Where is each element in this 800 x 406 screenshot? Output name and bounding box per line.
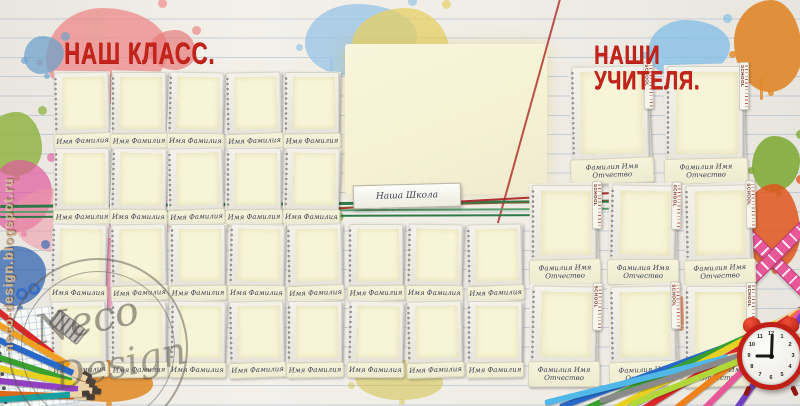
teacher-name-line2: Отчество: [623, 272, 663, 280]
student-name-text: Имя Фамилия: [228, 213, 281, 222]
spiral-binding-icon: [405, 305, 412, 359]
teacher-name-line2: Отчество: [544, 374, 584, 382]
ruler-tab-text: SCHOOL: [671, 284, 676, 306]
spiral-binding-icon: [406, 227, 413, 281]
student-photo-frame: Имя Фамилия: [168, 147, 224, 228]
student-name-text: Имя Фамилия: [285, 213, 338, 221]
student-name-text: Имя Фамилия: [231, 365, 284, 375]
photo-placeholder: [179, 229, 221, 281]
photo-placeholder: [540, 292, 591, 358]
teacher-photo-frame: SCHOOLФамилия ИмяОтчество: [532, 185, 596, 261]
paint-splatter-dot: [296, 44, 303, 51]
paint-splatter-dot: [38, 106, 47, 115]
photo-card: [285, 72, 339, 134]
photo-card: [285, 147, 340, 210]
student-photo-frame: Имя Фамилия: [54, 71, 110, 152]
teachers-section-title: НАШИ УЧИТЕЛЯ.: [594, 42, 771, 94]
spiral-binding-icon: [166, 152, 173, 206]
photo-card: [287, 223, 342, 286]
photo-placeholder: [176, 153, 219, 206]
student-name-text: Имя Фамилия: [230, 289, 283, 297]
clock-number: 2: [789, 342, 792, 348]
student-name-text: Имя Фамилия: [469, 366, 522, 375]
clock-number: 1: [780, 334, 783, 340]
student-photo-frame: Имя Фамилия: [407, 300, 463, 381]
teacher-name-line2: Отчество: [686, 171, 726, 180]
photo-placeholder: [476, 306, 518, 358]
photo-card: [227, 148, 281, 210]
spiral-binding-icon: [167, 75, 174, 129]
spiral-binding-icon: [110, 76, 116, 130]
student-photo-frame: Имя Фамилия: [226, 71, 282, 152]
spiral-binding-icon: [224, 76, 231, 130]
student-photo-frame: Имя Фамилия: [229, 300, 285, 381]
photo-placeholder: [120, 77, 162, 129]
spiral-binding-icon: [465, 228, 472, 282]
student-name-text: Имя Фамилия: [289, 366, 342, 375]
photo-card: [226, 71, 281, 134]
teacher-name-label: Фамилия ИмяОтчество: [528, 361, 600, 387]
ruler-tab-icon: SCHOOL: [671, 182, 682, 230]
spiral-binding-icon: [52, 76, 59, 130]
spiral-binding-icon: [228, 227, 235, 281]
photo-placeholder: [295, 229, 338, 282]
photo-placeholder: [237, 306, 280, 359]
teacher-photo-frame: SCHOOLФамилия ИмяОтчество: [685, 184, 750, 261]
student-name-text: Имя Фамилия: [56, 136, 109, 146]
spiral-binding-icon: [285, 228, 292, 282]
student-name-text: Имя Фамилия: [286, 137, 339, 146]
spiral-binding-icon: [53, 152, 59, 206]
teacher-name-label: Фамилия ИмяОтчество: [529, 258, 602, 286]
student-name-text: Имя Фамилия: [408, 289, 461, 297]
student-name-label: Имя Фамилия: [228, 361, 287, 379]
photo-placeholder: [238, 229, 281, 282]
school-name-banner: Наша Школа: [353, 183, 462, 210]
paint-splatter-dot: [796, 175, 800, 184]
paint-splatter-dot: [408, 0, 417, 6]
ruler-tab-text: SCHOOL: [747, 285, 752, 307]
ruler-tab-text: SCHOOL: [672, 185, 677, 207]
student-photo-frame: Имя Фамилия: [287, 223, 343, 304]
clock-number: 6: [769, 375, 772, 381]
student-name-text: Имя Фамилия: [170, 212, 223, 222]
teacher-name-line2: Отчество: [592, 170, 632, 180]
teacher-name-line1: Фамилия Имя: [617, 264, 670, 272]
student-photo-frame: Имя Фамилия: [407, 223, 463, 304]
student-photo-frame: Имя Фамилия: [285, 72, 339, 152]
clock-number: 9: [747, 353, 750, 359]
spiral-binding-icon: [110, 151, 117, 205]
ruler-tab-text: SCHOOL: [746, 183, 751, 205]
spiral-binding-icon: [529, 289, 536, 358]
student-name-text: Имя Фамилия: [112, 213, 165, 221]
spiral-binding-icon: [683, 190, 690, 258]
spiral-binding-icon: [684, 290, 690, 359]
clock-number: 10: [749, 342, 755, 348]
photo-placeholder: [694, 190, 745, 255]
photo-placeholder: [416, 229, 459, 282]
student-photo-frame: Имя Фамилия: [171, 224, 225, 304]
student-name-label: Имя Фамилия: [406, 361, 465, 379]
class-section-title: НАШ КЛАСС.: [64, 39, 215, 69]
student-name-label: Имя Фамилия: [286, 361, 344, 378]
paint-splatter-dot: [192, 26, 201, 35]
ruler-tab-text: SCHOOL: [593, 286, 598, 308]
paint-splatter-dot: [158, 0, 167, 8]
photo-placeholder: [619, 191, 670, 256]
photo-placeholder: [296, 306, 338, 358]
teacher-name-label: Фамилия ИмяОтчество: [570, 156, 655, 185]
photo-placeholder: [357, 306, 400, 359]
photo-card: [168, 147, 223, 210]
paint-splatter-dot: [21, 57, 28, 64]
student-name-text: Имя Фамилия: [350, 289, 403, 298]
student-name-text: Имя Фамилия: [349, 366, 402, 374]
photo-card: [288, 301, 342, 363]
clock-center-dot: [769, 354, 774, 359]
teacher-name-line1: Фамилия Имя: [538, 366, 591, 374]
student-name-text: Имя Фамилия: [113, 137, 166, 146]
photo-placeholder: [63, 153, 105, 205]
ruler-tab-icon: SCHOOL: [592, 283, 603, 331]
ruler-tab-icon: SCHOOL: [670, 281, 681, 329]
ruler-tab-icon: SCHOOL: [592, 181, 602, 229]
student-name-text: Имя Фамилия: [172, 289, 225, 298]
clock-number: 3: [792, 353, 795, 359]
paint-splatter-dot: [442, 0, 451, 9]
alarm-clock: 121234567891011: [737, 322, 800, 390]
photo-placeholder: [475, 229, 518, 282]
photo-card: [468, 301, 522, 363]
school-photo-placeholder: [345, 44, 547, 194]
student-photo-frame: Имя Фамилия: [467, 223, 523, 304]
teacher-photo-frame: SCHOOLФамилия ИмяОтчество: [610, 184, 675, 261]
photo-card: [230, 223, 285, 286]
photo-placeholder: [293, 77, 335, 129]
spiral-binding-icon: [608, 291, 615, 360]
spiral-binding-icon: [283, 76, 289, 130]
photo-card: [408, 223, 463, 286]
photo-card: [112, 72, 166, 134]
photo-placeholder: [120, 153, 163, 206]
photo-card: [407, 300, 462, 363]
clock-number: 11: [757, 334, 763, 340]
photo-card: [54, 71, 109, 134]
student-photo-frame: Имя Фамилия: [229, 223, 285, 304]
photo-placeholder: [357, 229, 399, 281]
spiral-binding-icon: [283, 151, 290, 205]
spiral-binding-icon: [225, 152, 231, 206]
ruler-tab-icon: SCHOOL: [745, 180, 756, 228]
teacher-photo-frame: SCHOOLФамилия ИмяОтчество: [610, 285, 675, 363]
student-name-label: Имя Фамилия: [466, 361, 524, 378]
photo-placeholder: [619, 291, 670, 357]
student-photo-frame: Имя Фамилия: [55, 148, 109, 228]
photo-placeholder: [62, 77, 105, 130]
photo-placeholder: [177, 77, 220, 130]
clock-face: 121234567891011: [737, 322, 800, 390]
spiral-binding-icon: [227, 305, 234, 359]
student-photo-frame: Имя Фамилия: [349, 224, 403, 304]
paint-splatter-dot: [399, 399, 405, 405]
student-photo-frame: Имя Фамилия: [468, 301, 522, 381]
photo-placeholder: [235, 153, 277, 205]
spiral-binding-icon: [530, 189, 536, 257]
photo-card: [171, 224, 225, 286]
student-photo-frame: Имя Фамилия: [111, 147, 167, 228]
clock-number: 5: [780, 372, 783, 378]
student-photo-frame: Имя Фамилия: [284, 147, 340, 228]
student-name-text: Имя Фамилия: [56, 213, 109, 222]
student-name-label: Имя Фамилия: [405, 285, 463, 301]
photo-placeholder: [293, 153, 336, 206]
clock-number: 8: [750, 364, 753, 370]
school-banner-text: Наша Школа: [376, 190, 438, 202]
photo-card: [349, 300, 404, 363]
student-name-label: Имя Фамилия: [346, 362, 404, 378]
photo-card: SCHOOL: [531, 285, 596, 363]
photo-placeholder: [541, 191, 591, 255]
photo-card: [467, 223, 522, 286]
clock-minute-hand: [770, 334, 773, 356]
spiral-binding-icon: [608, 188, 615, 256]
student-name-text: Имя Фамилия: [228, 136, 281, 146]
student-name-text: Имя Фамилия: [289, 288, 342, 298]
clock-number: 7: [758, 372, 761, 378]
spiral-binding-icon: [569, 71, 577, 157]
teacher-name-label: Фамилия ИмяОтчество: [607, 259, 679, 285]
spiral-binding-icon: [286, 305, 292, 359]
photo-card: SCHOOL: [685, 184, 750, 261]
student-name-text: Имя Фамилия: [469, 288, 522, 298]
student-photo-frame: Имя Фамилия: [168, 71, 224, 152]
photo-card: [349, 224, 403, 286]
student-photo-frame: Имя Фамилия: [227, 148, 281, 228]
spiral-binding-icon: [466, 305, 472, 359]
ruler-tab-text: SCHOOL: [593, 184, 598, 206]
paint-splatter-dot: [796, 130, 800, 139]
clock-number: 12: [768, 331, 774, 337]
photo-card: [229, 300, 284, 363]
blog-url-watermark: neco-design.blogspot.ru: [1, 116, 16, 352]
photo-placeholder: [234, 77, 277, 130]
clock-number: 4: [789, 364, 792, 370]
photo-card: [55, 148, 109, 210]
student-name-text: Имя Фамилия: [409, 365, 462, 375]
paint-splatter-dot: [348, 382, 355, 389]
spiral-binding-icon: [169, 228, 175, 282]
student-name-label: Имя Фамилия: [227, 285, 285, 301]
student-photo-frame: Имя Фамилия: [348, 300, 404, 381]
paint-splatter-dot: [723, 14, 732, 23]
photo-placeholder: [415, 306, 458, 359]
photo-card: [169, 71, 224, 134]
student-photo-frame: Имя Фамилия: [288, 301, 342, 381]
spiral-binding-icon: [347, 304, 354, 358]
photo-card: SCHOOL: [532, 185, 596, 261]
teacher-name-line2: Отчество: [545, 272, 585, 281]
template-canvas: Наша Школа НАШ КЛАСС. НАШИ УЧИТЕЛЯ. Имя …: [0, 0, 800, 406]
photo-card: [112, 147, 167, 210]
clock-leg: [790, 385, 799, 396]
spiral-binding-icon: [347, 228, 353, 282]
teacher-photo-frame: SCHOOLФамилия ИмяОтчество: [531, 285, 596, 363]
student-photo-frame: Имя Фамилия: [112, 72, 166, 152]
paint-splatter-dot: [44, 73, 50, 79]
student-name-text: Имя Фамилия: [169, 137, 222, 145]
photo-card: SCHOOL: [610, 285, 675, 363]
photo-card: SCHOOL: [610, 184, 675, 261]
paint-splatter-dot: [748, 167, 755, 174]
teacher-name-line2: Отчество: [700, 271, 740, 281]
